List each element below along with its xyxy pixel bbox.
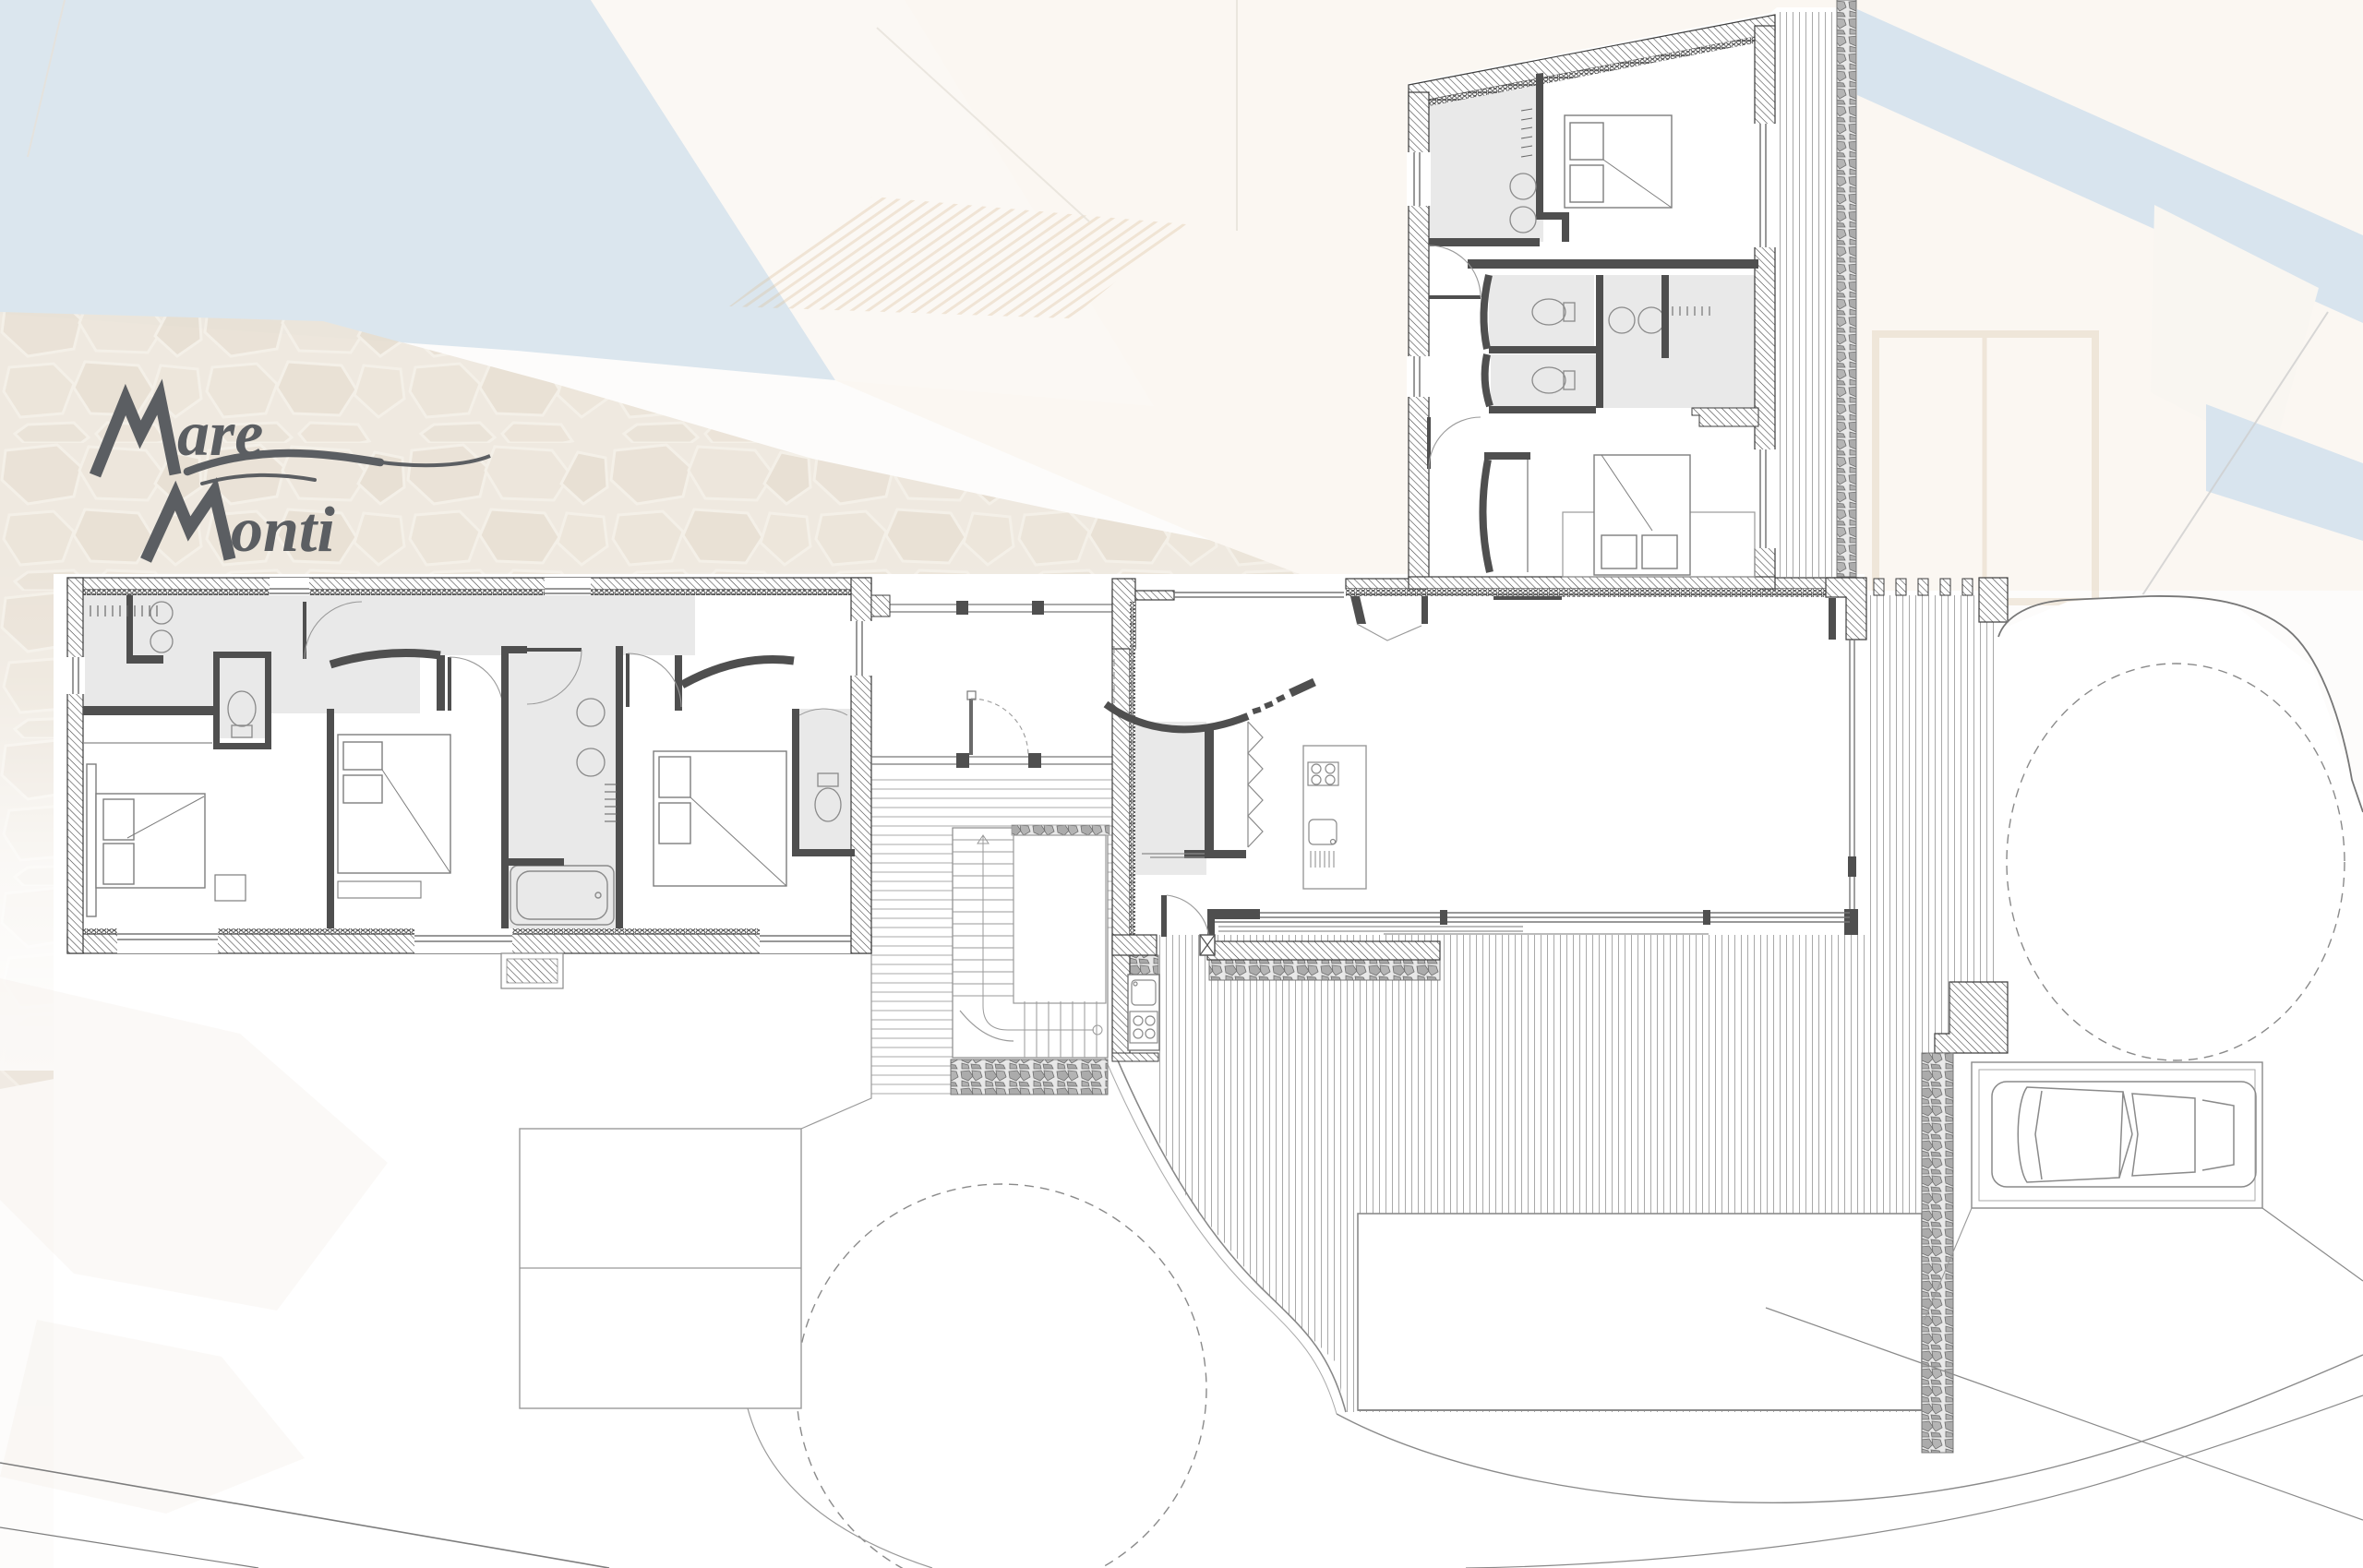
svg-text:onti: onti xyxy=(231,495,335,566)
